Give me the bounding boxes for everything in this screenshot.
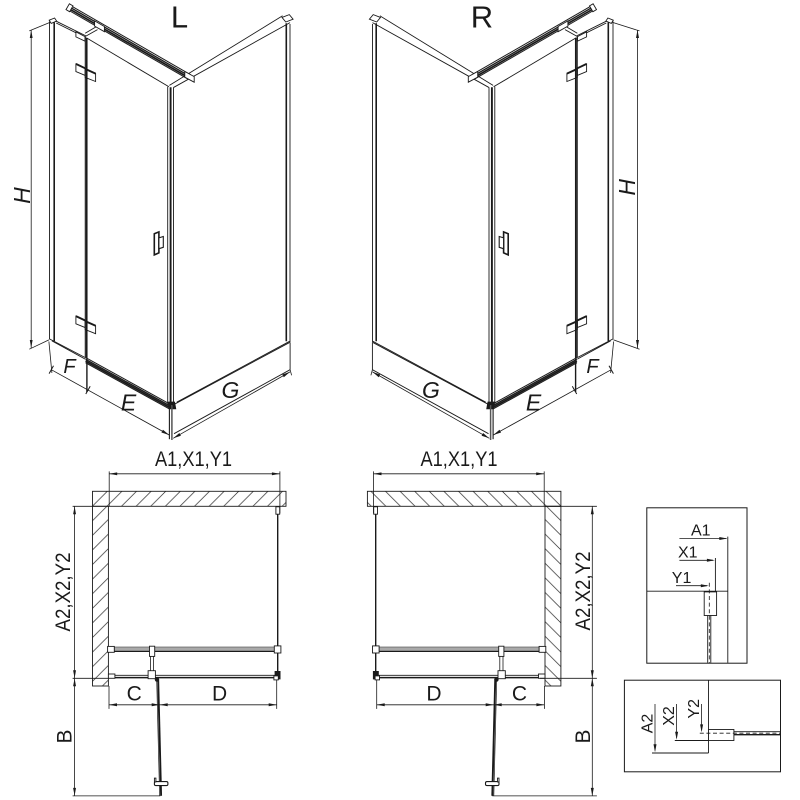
svg-text:H: H [9, 187, 35, 204]
svg-text:A2,X2,Y2: A2,X2,Y2 [52, 553, 75, 632]
svg-text:A2: A2 [640, 714, 657, 734]
svg-text:C: C [512, 683, 527, 706]
svg-text:H: H [614, 179, 640, 196]
svg-text:X2: X2 [661, 706, 678, 726]
svg-text:F: F [586, 356, 600, 378]
svg-text:D: D [212, 683, 227, 706]
svg-text:A2,X2,Y2: A2,X2,Y2 [572, 552, 595, 631]
svg-text:X1: X1 [678, 545, 698, 562]
svg-text:A1,X1,Y1: A1,X1,Y1 [155, 448, 232, 471]
svg-text:E: E [526, 390, 542, 416]
svg-text:G: G [222, 377, 240, 403]
svg-text:A1: A1 [691, 523, 711, 540]
svg-text:B: B [54, 729, 77, 743]
svg-text:A1,X1,Y1: A1,X1,Y1 [421, 448, 498, 471]
svg-text:E: E [121, 390, 137, 416]
svg-text:B: B [572, 729, 595, 743]
svg-text:G: G [422, 377, 440, 403]
svg-text:F: F [63, 356, 77, 378]
svg-text:Y1: Y1 [672, 570, 692, 587]
svg-text:R: R [471, 0, 493, 35]
svg-text:D: D [426, 683, 441, 706]
svg-text:Y2: Y2 [686, 699, 703, 719]
svg-text:C: C [127, 683, 142, 706]
svg-text:L: L [171, 0, 188, 35]
